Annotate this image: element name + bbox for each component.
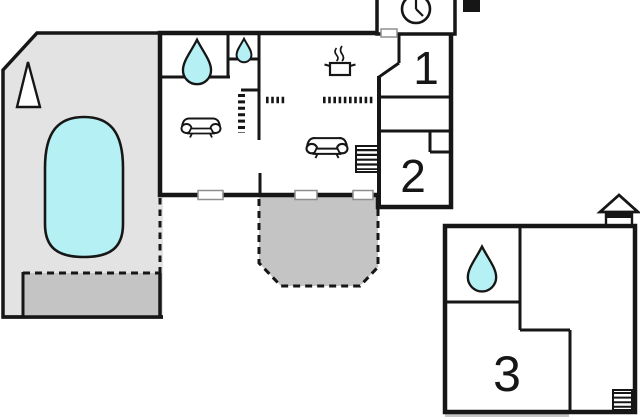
main-building: 1 2	[160, 0, 480, 207]
room-2-label: 2	[400, 150, 426, 202]
door-marker-bottom-3	[353, 191, 373, 200]
door-marker-top	[381, 29, 397, 37]
door-marker-bottom-2	[295, 191, 317, 200]
pool-house	[2, 33, 163, 317]
middle-terrace-floor	[259, 197, 378, 286]
pool-icon	[45, 117, 123, 257]
stairs-wing-icon	[356, 146, 378, 172]
middle-terrace	[259, 197, 378, 286]
floor-plan-drawing: 1 2 3	[0, 0, 640, 417]
door-marker-bottom-1	[198, 191, 223, 200]
floor-plan-canvas: 1 2 3	[0, 0, 640, 417]
house-annex-icon	[600, 195, 638, 225]
room-3-label: 3	[493, 346, 521, 402]
room-1-label: 1	[413, 42, 439, 94]
ladder-annex-icon	[613, 390, 632, 410]
chimney-icon	[463, 0, 480, 12]
annex-outer-walls	[445, 226, 635, 412]
annex-building: 3	[445, 195, 638, 417]
pool-house-terrace	[23, 273, 160, 317]
